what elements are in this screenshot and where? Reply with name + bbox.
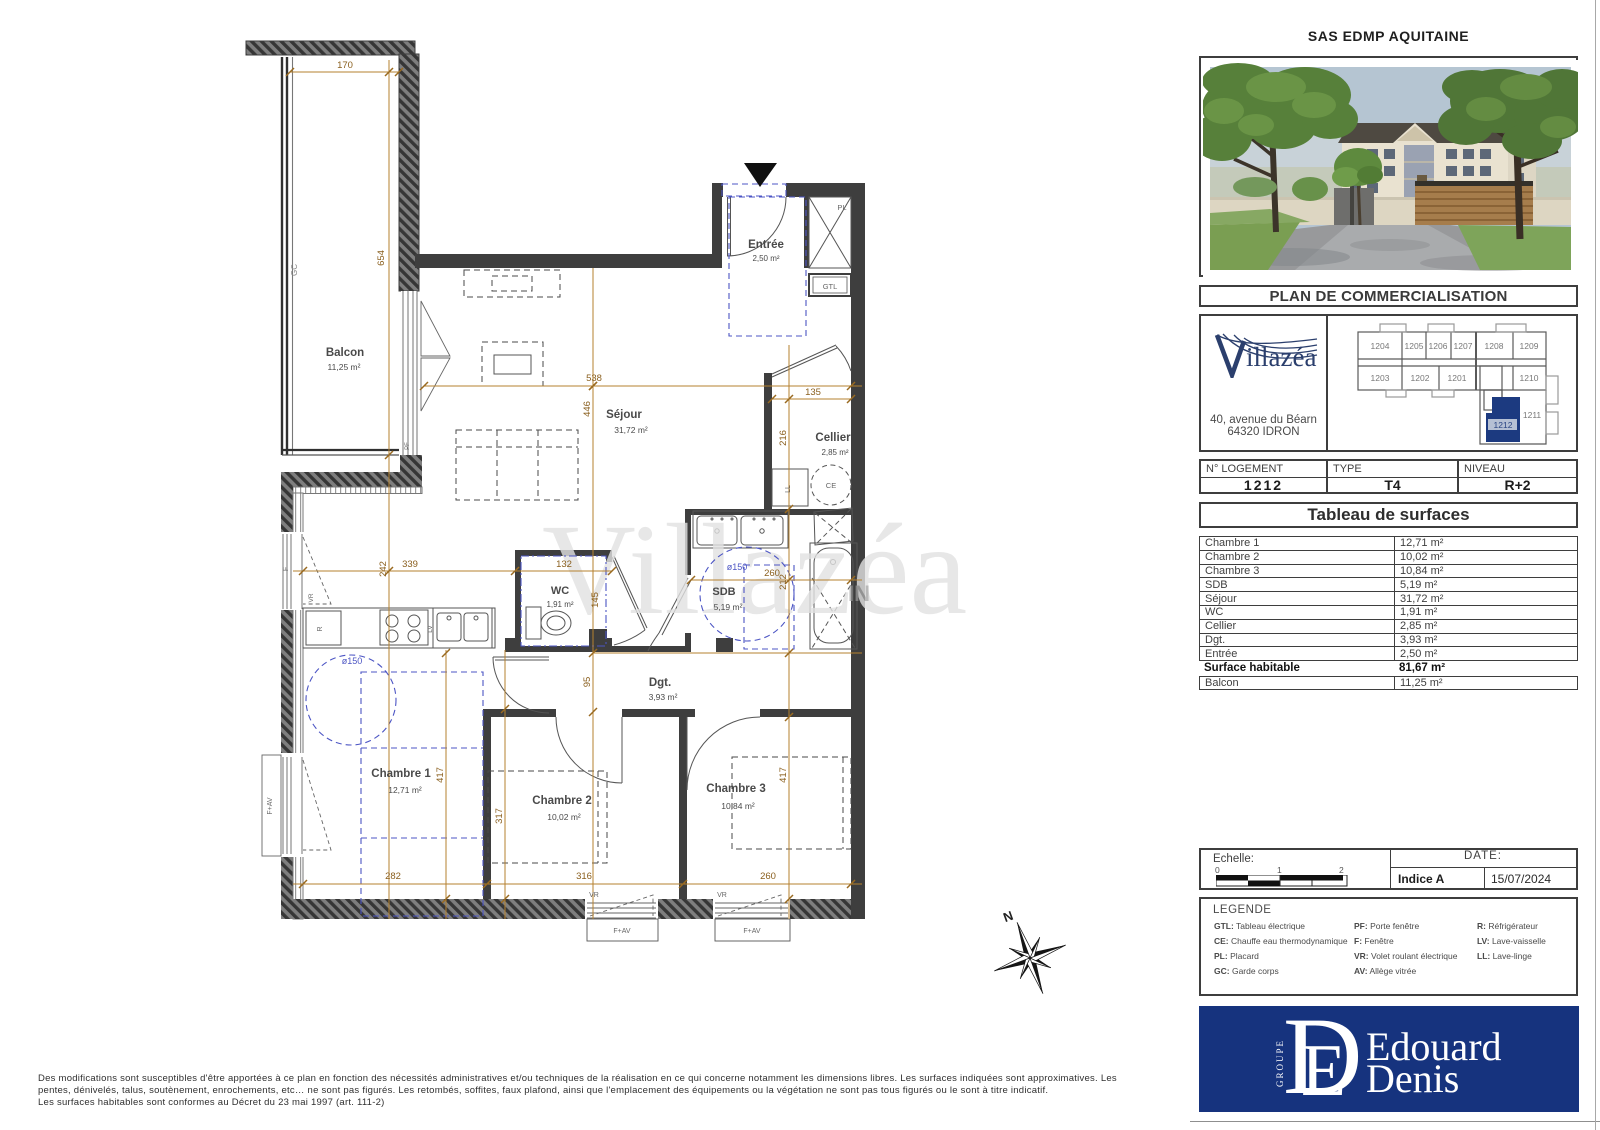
svg-text:135: 135 (805, 387, 821, 398)
svg-text:216: 216 (778, 430, 789, 446)
svg-text:WC: WC (551, 585, 569, 597)
svg-text:316: 316 (576, 871, 592, 882)
svg-text:VR: VR (717, 892, 727, 899)
svg-text:PF: PF (405, 442, 411, 450)
svg-text:2,50 m²: 2,50 m² (752, 254, 779, 263)
svg-text:339: 339 (402, 559, 418, 570)
svg-text:Séjour: Séjour (606, 409, 642, 421)
svg-text:10,02 m²: 10,02 m² (547, 812, 581, 822)
svg-text:5,19 m²: 5,19 m² (714, 602, 743, 612)
svg-text:1207: 1207 (1454, 341, 1473, 351)
svg-text:1211: 1211 (1523, 410, 1542, 420)
svg-text:282: 282 (385, 871, 401, 882)
svg-text:Entrée: Entrée (748, 239, 784, 251)
svg-text:212: 212 (778, 574, 789, 590)
svg-text:Dgt.: Dgt. (649, 677, 671, 689)
svg-text:1209: 1209 (1520, 341, 1539, 351)
svg-text:1201: 1201 (1448, 373, 1467, 383)
svg-text:Chambre 1: Chambre 1 (371, 768, 431, 780)
svg-text:417: 417 (435, 767, 446, 783)
svg-text:F+AV: F+AV (613, 928, 631, 935)
svg-text:1205: 1205 (1405, 341, 1424, 351)
svg-text:170: 170 (337, 60, 353, 71)
svg-text:1212: 1212 (1494, 420, 1513, 430)
svg-text:Chambre 2: Chambre 2 (532, 795, 591, 807)
svg-text:N: N (1001, 908, 1015, 925)
svg-text:ø150: ø150 (342, 656, 363, 666)
svg-text:260: 260 (760, 871, 776, 882)
svg-text:95: 95 (582, 677, 593, 688)
svg-text:VR: VR (308, 593, 315, 602)
svg-text:1,91 m²: 1,91 m² (546, 600, 573, 609)
svg-text:417: 417 (778, 767, 789, 783)
svg-text:654: 654 (376, 250, 387, 266)
svg-text:132: 132 (556, 559, 572, 570)
svg-text:GC: GC (290, 264, 299, 276)
svg-text:PL: PL (837, 203, 846, 212)
svg-text:242: 242 (378, 561, 389, 577)
svg-text:Chambre 3: Chambre 3 (706, 783, 765, 795)
svg-text:GTL: GTL (823, 282, 838, 291)
svg-text:F+AV: F+AV (267, 797, 274, 815)
svg-text:ø150: ø150 (727, 562, 748, 572)
svg-text:1206: 1206 (1429, 341, 1448, 351)
svg-text:1204: 1204 (1371, 341, 1390, 351)
svg-text:11,25 m²: 11,25 m² (328, 362, 361, 372)
svg-text:SDB: SDB (712, 586, 735, 598)
svg-text:LV: LV (427, 625, 434, 633)
svg-text:1202: 1202 (1411, 373, 1430, 383)
svg-text:CE: CE (826, 481, 836, 490)
svg-text:2,85 m²: 2,85 m² (821, 448, 848, 457)
svg-text:31,72 m²: 31,72 m² (614, 425, 648, 435)
svg-text:F+AV: F+AV (743, 928, 761, 935)
svg-text:3,93 m²: 3,93 m² (649, 692, 678, 702)
svg-text:1208: 1208 (1485, 341, 1504, 351)
svg-text:1210: 1210 (1520, 373, 1539, 383)
svg-text:LL: LL (785, 485, 792, 493)
svg-text:IN: IN (848, 581, 870, 606)
svg-text:Balcon: Balcon (326, 347, 364, 359)
svg-text:317: 317 (494, 808, 505, 824)
svg-text:R: R (317, 626, 324, 631)
svg-text:446: 446 (582, 401, 593, 417)
svg-text:12,71 m²: 12,71 m² (388, 785, 422, 795)
svg-text:1203: 1203 (1371, 373, 1390, 383)
svg-text:10,84 m²: 10,84 m² (721, 801, 755, 811)
svg-text:538: 538 (586, 373, 602, 384)
svg-text:F: F (283, 567, 290, 571)
svg-text:VR: VR (589, 892, 599, 899)
svg-text:145: 145 (590, 592, 601, 608)
svg-text:Cellier: Cellier (815, 432, 851, 444)
